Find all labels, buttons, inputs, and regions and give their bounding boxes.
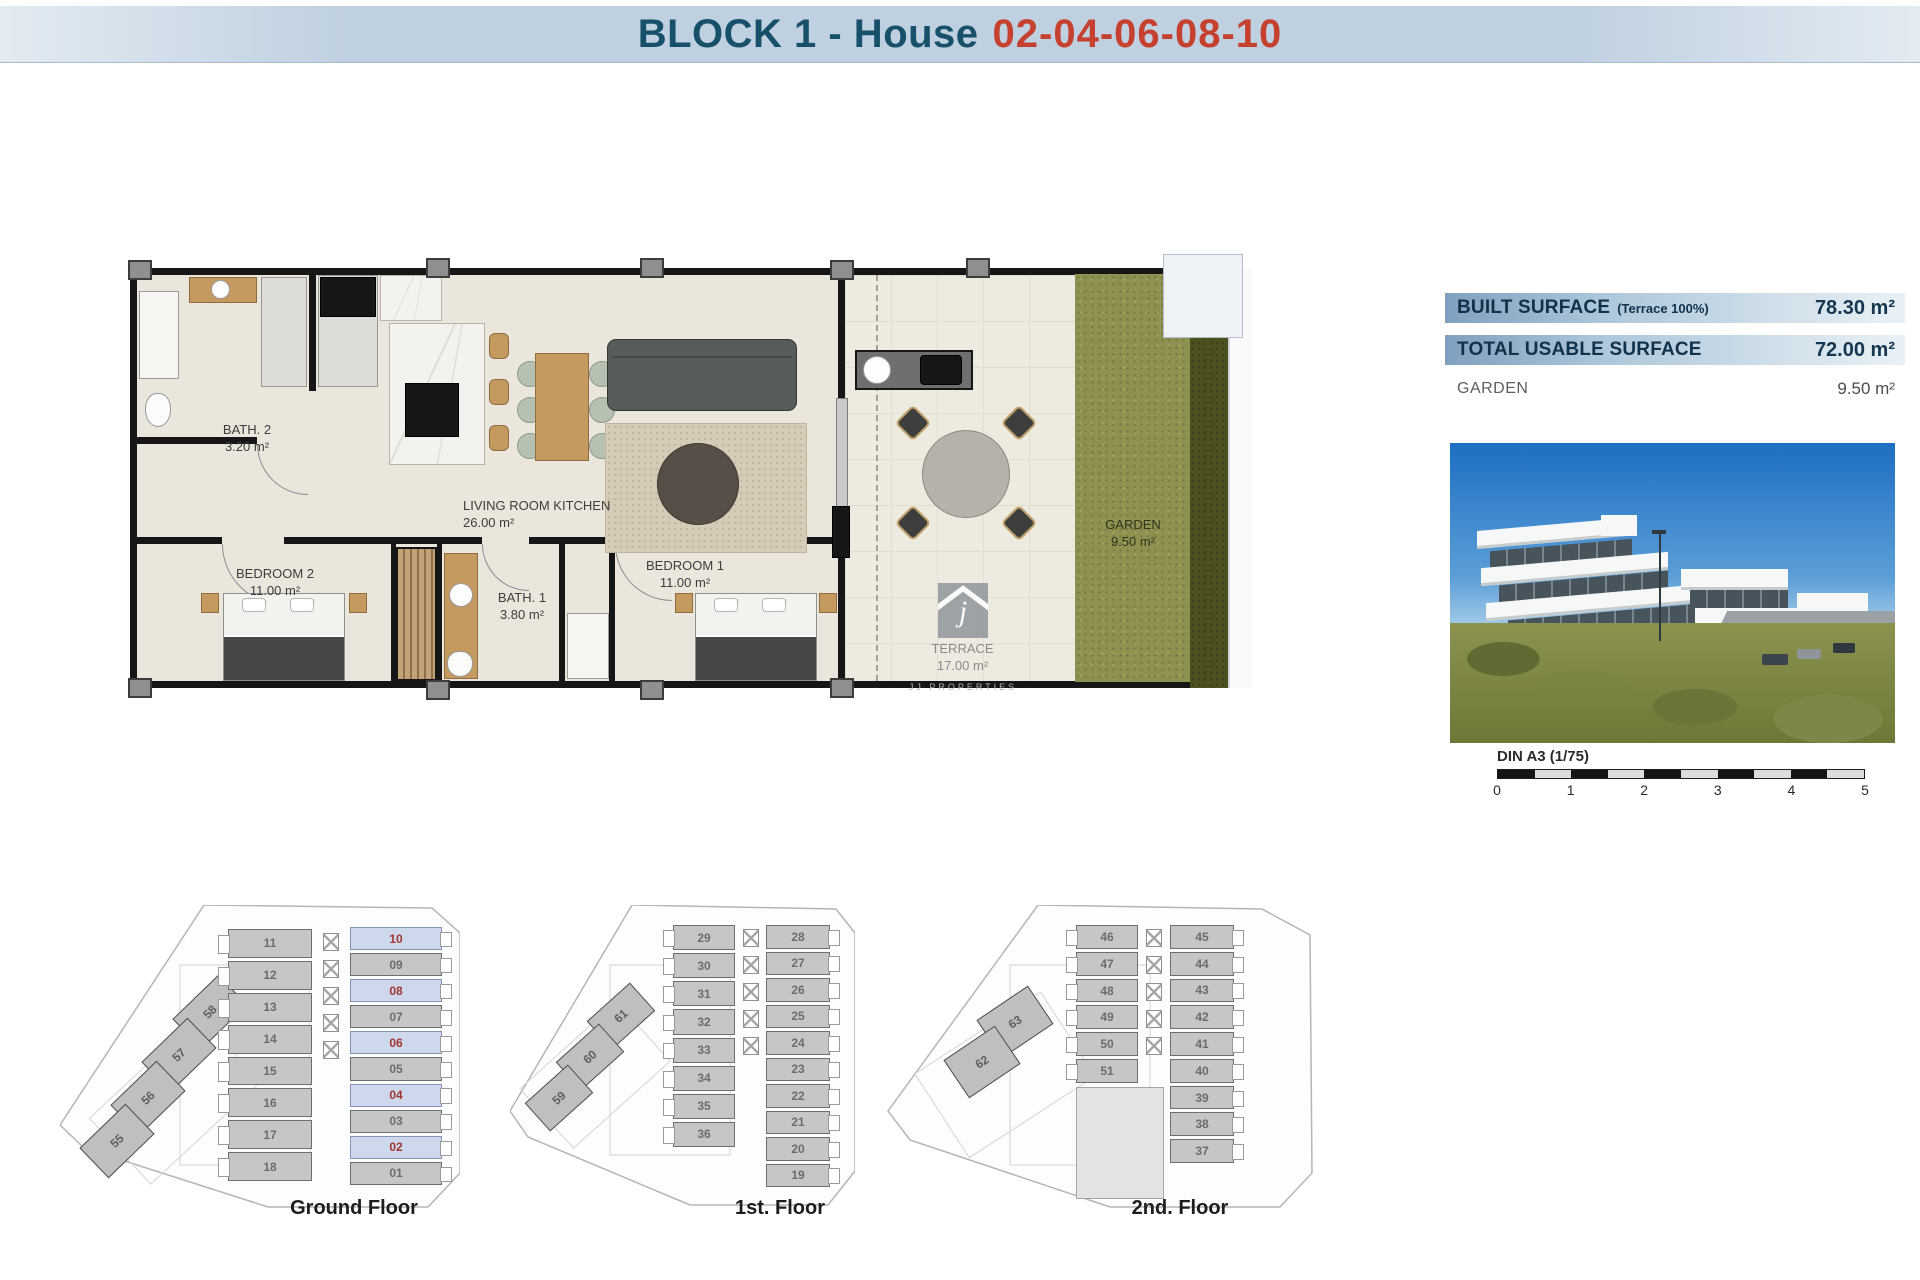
unit-44: 44 [1170,952,1234,976]
wall [437,537,442,681]
elevator-icon [323,960,339,978]
unit-29: 29 [673,925,735,950]
pillar [830,260,854,280]
unit-39: 39 [1170,1086,1234,1110]
elevator-icon [743,1037,759,1055]
floor-plan-first: 616059 2930313233343536 2827262524232221… [510,905,855,1220]
elevator-icon [743,1010,759,1028]
door-gap [482,537,529,544]
nightstand [675,593,693,613]
bar-stool [489,425,509,451]
sink [211,280,230,299]
unit-column-right: 454443424140393837 [1170,925,1234,1163]
sliding-door [836,398,848,518]
shower [139,291,179,379]
building-photo [1450,443,1895,743]
unit-01: 01 [350,1162,442,1185]
unit-33: 33 [673,1038,735,1063]
shower [567,613,609,679]
dining-table [535,353,589,461]
scale-tick: 2 [1640,782,1648,798]
car [1762,654,1788,665]
sink [449,583,473,607]
unit-41: 41 [1170,1032,1234,1056]
room-label-bedroom2: BEDROOM 211.00 m² [215,565,335,599]
unit-19: 19 [766,1164,830,1188]
unit-03: 03 [350,1110,442,1133]
unit-16: 16 [228,1088,312,1117]
unit-07: 07 [350,1005,442,1028]
floor-label: 1st. Floor [735,1197,825,1220]
wardrobe [396,547,437,681]
vegetation [1450,623,1895,743]
watermark-text: JJ PROPERTIES [878,682,1048,692]
unit-22: 22 [766,1084,830,1108]
elevator-icon [323,1014,339,1032]
plan-sheet: BLOCK 1 - House 02-04-06-08-10 [0,0,1920,1280]
unit-43: 43 [1170,979,1234,1003]
pillar [966,258,990,278]
pillar [426,258,450,278]
scale-tick: 5 [1861,782,1869,798]
apartment-outline: BATH. 23.20 m² LIVING ROOM KITCHEN26.00 … [130,268,845,688]
elevator-shafts [318,929,344,1185]
elevator-shafts [739,925,763,1151]
unit-42: 42 [1170,1005,1234,1029]
elevator-icon [323,933,339,951]
unit-column-right: 28272625242322212019 [766,925,830,1187]
kitchen-counter [380,275,442,321]
pillar [830,678,854,698]
unit-17: 17 [228,1120,312,1149]
plot-box [1163,254,1243,338]
unit-04: 04 [350,1084,442,1107]
unit-46: 46 [1076,925,1138,949]
fridge [320,277,376,317]
terrace-table [922,430,1010,518]
unit-24: 24 [766,1031,830,1055]
unit-15: 15 [228,1057,312,1086]
header-title: BLOCK 1 - House [638,12,979,57]
table-row-garden: GARDEN 9.50 m² [1445,377,1905,401]
elevator-icon [743,956,759,974]
car [1833,643,1855,653]
floor-label: 2nd. Floor [1132,1197,1229,1220]
boundary-dashes [876,275,878,681]
unit-13: 13 [228,993,312,1022]
unit-49: 49 [1076,1005,1138,1029]
door-gap [222,537,284,544]
bbq [920,355,962,385]
unit-36: 36 [673,1122,735,1147]
unit-37: 37 [1170,1139,1234,1163]
unit-column-right: 10090807060504030201 [350,927,442,1185]
bed [695,593,817,681]
elevator-icon [1146,1037,1162,1055]
room-label-bedroom1: BEDROOM 111.00 m² [625,557,745,591]
unit-05: 05 [350,1057,442,1080]
nightstand [349,593,367,613]
header-bar: BLOCK 1 - House 02-04-06-08-10 [0,6,1920,63]
unit-40: 40 [1170,1059,1234,1083]
room-label-bath2: BATH. 23.20 m² [197,421,297,455]
scale-ticks: 012345 [1497,782,1865,800]
unit-28: 28 [766,925,830,949]
floor-plan-ground: 58575655 1112131415161718 10090807060504… [60,905,460,1220]
table-row-built-surface: BUILT SURFACE (Terrace 100%) 78.30 m² [1445,293,1905,323]
pillar [128,678,152,698]
unit-10: 10 [350,927,442,950]
room-label-bath1: BATH. 13.80 m² [477,589,567,623]
unit-38: 38 [1170,1112,1234,1136]
pillar [426,680,450,700]
table-row-usable-surface: TOTAL USABLE SURFACE 72.00 m² [1445,335,1905,365]
scale-tick: 0 [1493,782,1501,798]
unit-20: 20 [766,1137,830,1161]
unit-21: 21 [766,1111,830,1135]
floor-label: Ground Floor [290,1197,418,1220]
unit-18: 18 [228,1152,312,1181]
bed [223,593,345,681]
elevator-shafts [1142,925,1166,1167]
main-floor-plan: BATH. 23.20 m² LIVING ROOM KITCHEN26.00 … [130,258,1250,698]
unit-50: 50 [1076,1032,1138,1056]
scale-label: DIN A3 (1/75) [1497,748,1865,765]
unit-31: 31 [673,981,735,1006]
room-label-garden: GARDEN9.50 m² [1078,516,1188,550]
unit-27: 27 [766,952,830,976]
nightstand [819,593,837,613]
elevator-icon [1146,983,1162,1001]
unit-47: 47 [1076,952,1138,976]
unit-35: 35 [673,1094,735,1119]
unit-32: 32 [673,1009,735,1034]
pillar [128,260,152,280]
unit-30: 30 [673,953,735,978]
scale-bar: DIN A3 (1/75) 012345 [1497,748,1865,800]
door-arc [482,544,529,591]
outdoor-sink [863,356,891,384]
unit-25: 25 [766,1005,830,1029]
room-label-living: LIVING ROOM KITCHEN26.00 m² [463,497,683,531]
room-label-terrace: TERRACE17.00 m² [910,640,1015,674]
cabinet [261,277,307,387]
car [1797,649,1821,659]
toilet [447,651,473,677]
elevator-icon [1146,956,1162,974]
wall [609,537,615,681]
elevator-icon [743,929,759,947]
elevator-icon [1146,929,1162,947]
unit-12: 12 [228,961,312,990]
elevator-icon [323,987,339,1005]
scale-tick: 4 [1787,782,1795,798]
unit-09: 09 [350,953,442,976]
elevator-icon [323,1041,339,1059]
unit-column-left: 464748495051 [1076,925,1138,1083]
bar-stool [489,379,509,405]
toilet [145,393,171,427]
elevator-icon [1146,1010,1162,1028]
unit-45: 45 [1170,925,1234,949]
scale-tick: 3 [1714,782,1722,798]
pillar [640,258,664,278]
unit-51: 51 [1076,1059,1138,1083]
unit-column-left: 2930313233343536 [673,925,735,1147]
unit-48: 48 [1076,979,1138,1003]
floor-plan-second: 6362 464748495051 454443424140393837 2nd… [880,905,1320,1220]
unit-11: 11 [228,929,312,958]
door-jamb [832,506,850,558]
pillar [640,680,664,700]
unit-02: 02 [350,1136,442,1159]
unit-column-left: 1112131415161718 [228,929,312,1181]
unit-14: 14 [228,1025,312,1054]
unit-08: 08 [350,979,442,1002]
brand-logo: j [938,583,988,638]
header-unit-numbers: 02-04-06-08-10 [993,12,1283,57]
unit-34: 34 [673,1066,735,1091]
cooktop [405,383,459,437]
elevator-icon [743,983,759,1001]
bar-stool [489,333,509,359]
scale-segments [1497,769,1865,779]
wall [309,275,316,391]
unit-06: 06 [350,1031,442,1054]
scale-tick: 1 [1567,782,1575,798]
unit-23: 23 [766,1058,830,1082]
sofa [607,339,797,411]
unit-26: 26 [766,978,830,1002]
surface-table: BUILT SURFACE (Terrace 100%) 78.30 m² TO… [1445,293,1905,401]
